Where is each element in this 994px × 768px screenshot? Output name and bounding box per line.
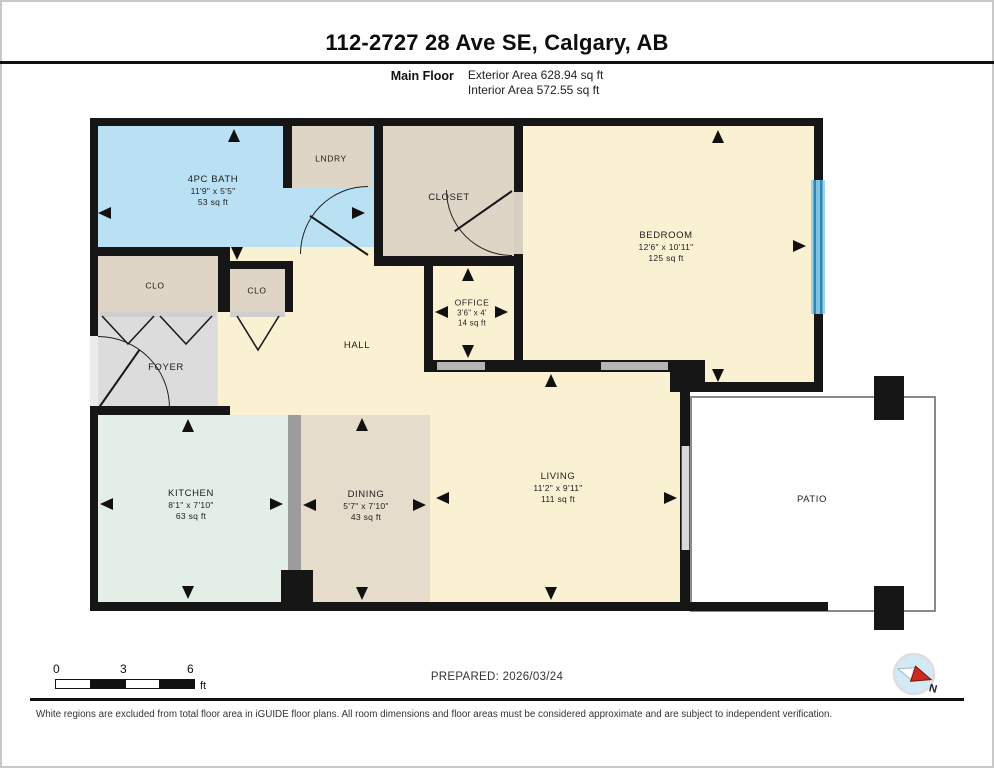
dimension-arrow-down xyxy=(712,369,724,382)
dimension-arrow-up xyxy=(545,374,557,387)
wall-bath-closet xyxy=(374,118,383,266)
room-label-foyer: FOYER xyxy=(148,362,184,374)
exterior-area: Exterior Area 628.94 sq ft xyxy=(468,68,603,82)
dimension-arrow-down xyxy=(545,587,557,600)
dimension-arrow-down xyxy=(462,345,474,358)
pillar-kitchen-dining xyxy=(281,570,313,604)
dimension-arrow-right xyxy=(413,499,426,511)
room-label-clo1: CLO xyxy=(145,280,164,291)
room-label-kitchen: KITCHEN 8'1" x 7'10" 63 sq ft xyxy=(168,488,214,522)
disclaimer-text: White regions are excluded from total fl… xyxy=(36,709,966,720)
prepared-date: PREPARED: 2026/03/24 xyxy=(0,671,994,683)
patio-pillar-bottom xyxy=(874,586,904,630)
wall-closet-bottom xyxy=(383,256,514,266)
floor-label: Main Floor xyxy=(391,68,454,98)
closet2-bifold-door xyxy=(230,314,286,354)
footer-divider xyxy=(30,698,964,701)
room-label-patio: PATIO xyxy=(797,494,827,506)
closet1-bifold-doors xyxy=(98,314,218,350)
room-label-laundry: LNDRY xyxy=(315,153,347,164)
dimension-arrow-left xyxy=(98,207,111,219)
floor-areas: Exterior Area 628.94 sq ft Interior Area… xyxy=(468,68,603,98)
bedroom-window xyxy=(811,180,825,314)
wall-corner-block xyxy=(670,360,705,392)
dimension-arrow-up xyxy=(228,129,240,142)
wall-top xyxy=(90,118,822,126)
dimension-arrow-left xyxy=(436,492,449,504)
wall-mid-opening-2 xyxy=(601,362,668,370)
dimension-arrow-right xyxy=(793,240,806,252)
dimension-arrow-up xyxy=(712,130,724,143)
wall-laundry-left xyxy=(283,126,292,188)
room-label-bedroom: BEDROOM 12'6" x 10'11" 125 sq ft xyxy=(639,230,694,264)
floor-summary: Main Floor Exterior Area 628.94 sq ft In… xyxy=(0,68,994,98)
entry-door-opening xyxy=(90,336,98,406)
kitchen-dining-half-wall xyxy=(288,415,301,570)
page-title: 112-2727 28 Ave SE, Calgary, AB xyxy=(0,30,994,56)
wall-bottom xyxy=(90,602,828,611)
floorplan-page: 112-2727 28 Ave SE, Calgary, AB Main Flo… xyxy=(0,0,994,768)
living-patio-window xyxy=(681,446,690,550)
dimension-arrow-right xyxy=(495,306,508,318)
patio-pillar-top xyxy=(874,376,904,420)
room-label-clo2: CLO xyxy=(247,285,266,296)
dimension-arrow-right xyxy=(664,492,677,504)
dimension-arrow-up xyxy=(182,419,194,432)
dimension-arrow-right xyxy=(270,498,283,510)
dimension-arrow-up xyxy=(462,268,474,281)
dimension-arrow-down xyxy=(182,586,194,599)
dimension-arrow-down xyxy=(356,587,368,600)
dimension-arrow-left xyxy=(435,306,448,318)
room-label-bath: 4PC BATH 11'9" x 5'5" 53 sq ft xyxy=(188,174,239,208)
dimension-arrow-left xyxy=(303,499,316,511)
interior-area: Interior Area 572.55 sq ft xyxy=(468,83,599,97)
header-divider xyxy=(0,61,994,64)
wall-mid-opening-1 xyxy=(437,362,485,370)
dimension-arrow-right xyxy=(352,207,365,219)
wall-closet2-top xyxy=(222,261,292,269)
room-label-office: OFFICE 3'6" x 4' 14 sq ft xyxy=(455,297,490,328)
room-label-hall: HALL xyxy=(344,340,370,352)
dimension-arrow-up xyxy=(356,418,368,431)
wall-closet1-right xyxy=(218,247,230,312)
wall-closet2-right xyxy=(285,261,293,312)
dimension-arrow-left xyxy=(100,498,113,510)
closet-door-opening xyxy=(514,192,523,254)
room-label-closet: CLOSET xyxy=(428,192,470,204)
wall-bath-bottom xyxy=(90,247,230,256)
room-label-dining: DINING 5'7" x 7'10" 43 sq ft xyxy=(343,489,389,523)
room-label-living: LIVING 11'2" x 9'11" 111 sq ft xyxy=(533,471,582,505)
wall-office-left xyxy=(424,266,433,372)
dimension-arrow-down xyxy=(231,247,243,260)
